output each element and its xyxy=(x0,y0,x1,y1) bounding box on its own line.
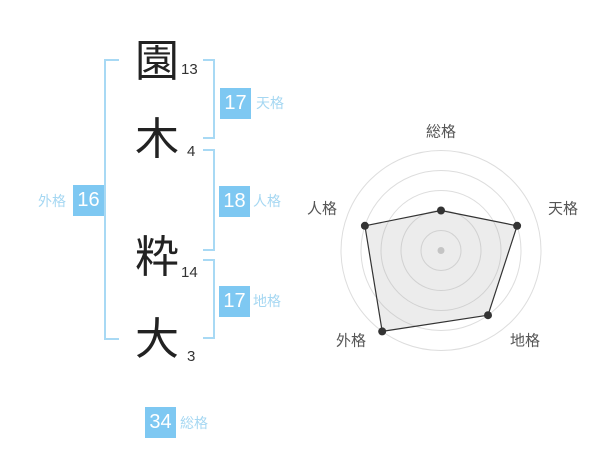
radar-axis-label: 外格 xyxy=(336,333,366,350)
radar-axis-label: 総格 xyxy=(426,124,456,141)
radar-axis-label: 人格 xyxy=(307,201,337,218)
radar-data-point xyxy=(484,311,492,319)
radar-axis-label: 地格 xyxy=(510,333,540,350)
name-analysis-page: 園 木 粋 大 13 4 14 3 17 18 17 16 34 天格 人格 地… xyxy=(0,0,600,470)
radar-data-point xyxy=(361,222,369,230)
radar-data-point xyxy=(378,327,386,335)
kaku-radar-chart: 総格天格地格外格人格 xyxy=(0,0,600,470)
radar-data-point xyxy=(437,207,445,215)
radar-axis-label: 天格 xyxy=(548,201,578,218)
radar-data-point xyxy=(513,222,521,230)
radar-data-polygon xyxy=(365,211,517,332)
